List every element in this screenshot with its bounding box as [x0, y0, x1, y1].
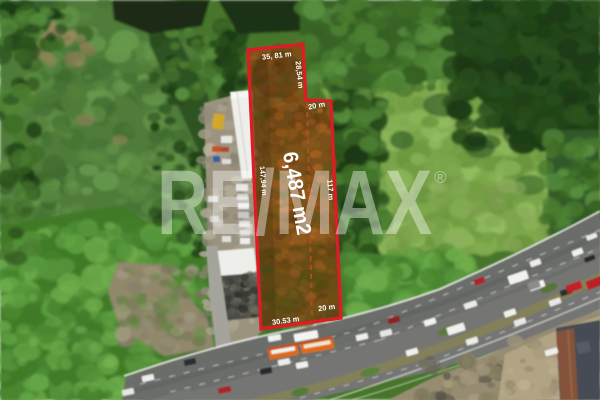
svg-text:®: ® [434, 168, 447, 187]
svg-text:117 m: 117 m [325, 179, 335, 201]
